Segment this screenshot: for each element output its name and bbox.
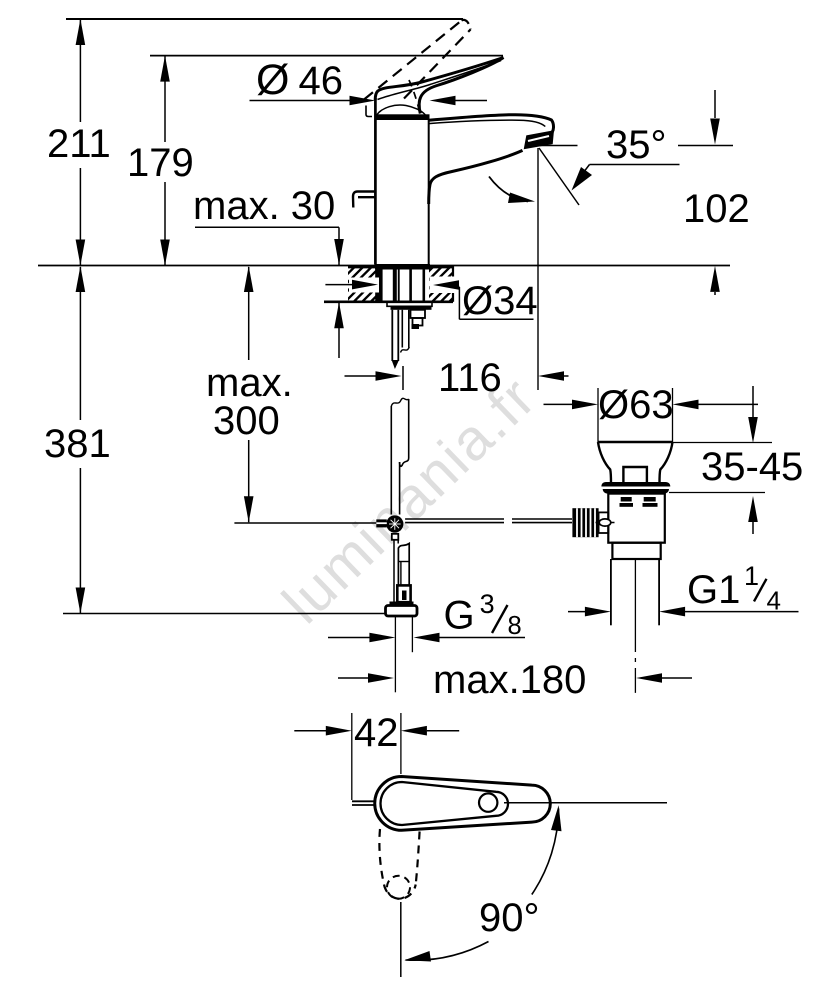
svg-text:90°: 90° [479, 896, 540, 940]
svg-text:1: 1 [744, 561, 759, 591]
svg-text:G: G [444, 594, 475, 638]
svg-text:8: 8 [508, 612, 522, 640]
svg-text:max.180: max.180 [433, 658, 586, 702]
svg-text:G1: G1 [687, 568, 740, 612]
svg-text:102: 102 [683, 187, 750, 231]
svg-text:3: 3 [480, 589, 495, 619]
svg-text:35-45: 35-45 [701, 445, 803, 489]
svg-text:211: 211 [47, 122, 111, 166]
svg-text:116: 116 [438, 356, 502, 400]
svg-text:Ø63: Ø63 [598, 383, 674, 427]
svg-text:Ø34: Ø34 [462, 279, 538, 323]
svg-text:381: 381 [44, 422, 111, 466]
svg-text:35°: 35° [606, 123, 667, 167]
svg-text:max. 30: max. 30 [193, 184, 335, 228]
svg-text:179: 179 [127, 141, 194, 185]
svg-text:Ø46: Ø46 [256, 56, 343, 104]
svg-text:42: 42 [354, 711, 399, 755]
svg-text:300: 300 [213, 399, 280, 443]
